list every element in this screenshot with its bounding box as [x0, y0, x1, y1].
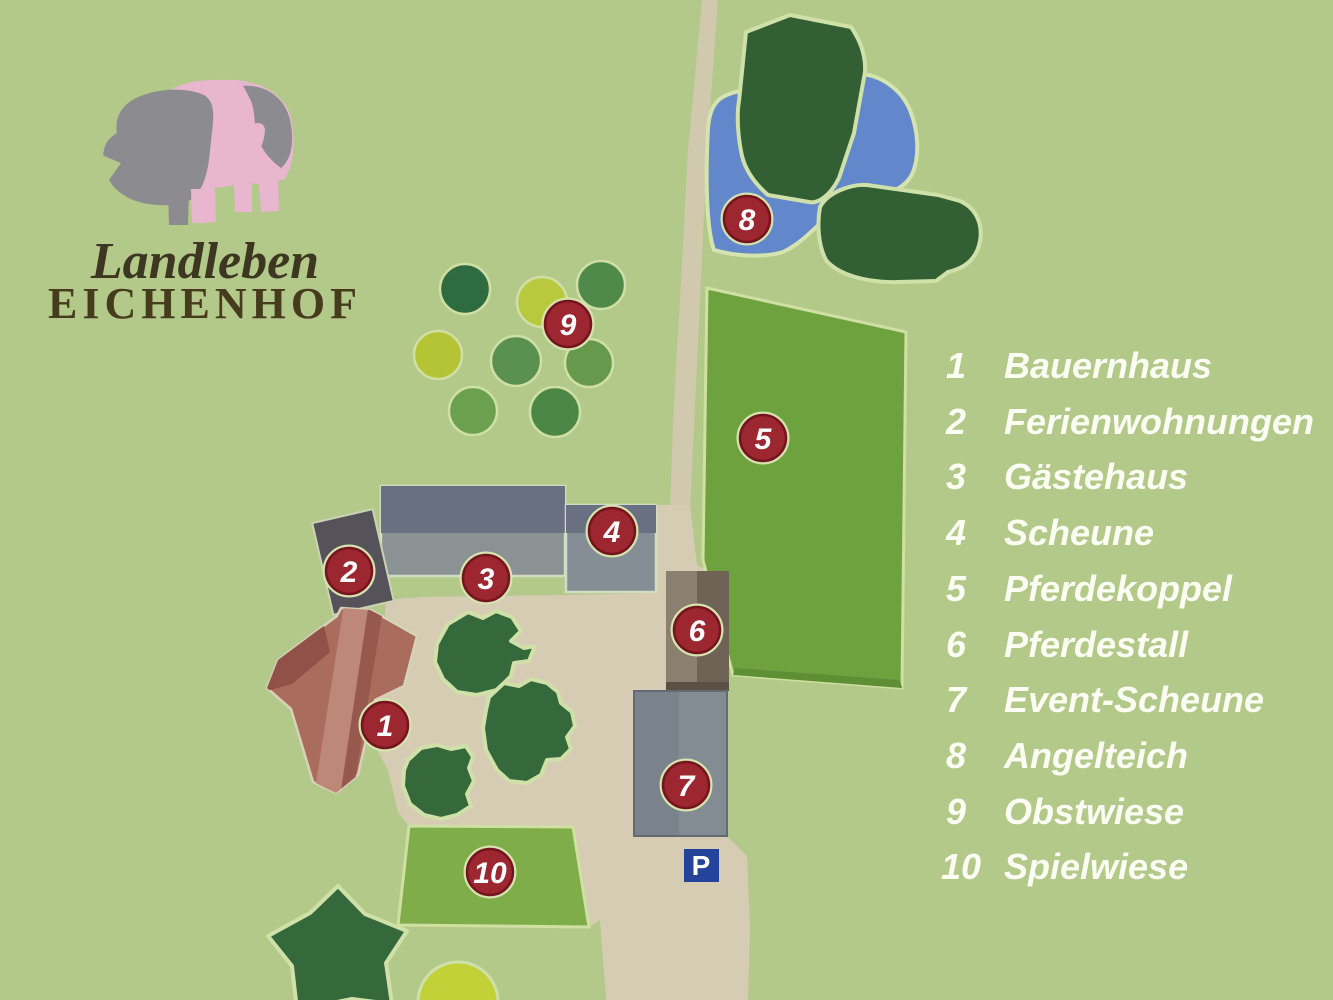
- svg-text:7: 7: [946, 679, 968, 720]
- svg-text:Spielwiese: Spielwiese: [1004, 846, 1188, 887]
- svg-text:6: 6: [689, 615, 706, 648]
- svg-text:P: P: [692, 850, 711, 881]
- svg-text:10: 10: [473, 857, 507, 890]
- svg-text:8: 8: [946, 735, 966, 776]
- svg-text:Gästehaus: Gästehaus: [1004, 456, 1188, 497]
- svg-text:2: 2: [340, 556, 358, 589]
- svg-text:3: 3: [478, 563, 495, 596]
- svg-text:2: 2: [945, 401, 966, 442]
- svg-text:10: 10: [941, 846, 981, 887]
- svg-text:5: 5: [946, 568, 967, 609]
- svg-text:3: 3: [946, 456, 966, 497]
- svg-text:Scheune: Scheune: [1004, 512, 1154, 553]
- svg-text:9: 9: [560, 309, 577, 342]
- svg-text:Ferienwohnungen: Ferienwohnungen: [1004, 401, 1314, 442]
- svg-text:Obstwiese: Obstwiese: [1004, 791, 1184, 832]
- svg-text:Event-Scheune: Event-Scheune: [1004, 679, 1264, 720]
- svg-text:Angelteich: Angelteich: [1003, 735, 1188, 776]
- svg-text:4: 4: [603, 516, 621, 549]
- svg-text:6: 6: [946, 624, 967, 665]
- svg-text:Bauernhaus: Bauernhaus: [1004, 345, 1212, 386]
- svg-text:7: 7: [678, 770, 696, 803]
- svg-text:Pferdekoppel: Pferdekoppel: [1004, 568, 1233, 609]
- svg-text:1: 1: [377, 710, 394, 743]
- svg-text:9: 9: [946, 791, 966, 832]
- svg-text:8: 8: [739, 204, 756, 237]
- svg-text:EICHENHOF: EICHENHOF: [48, 279, 362, 328]
- svg-text:Pferdestall: Pferdestall: [1004, 624, 1189, 665]
- svg-text:1: 1: [946, 345, 966, 386]
- svg-text:5: 5: [755, 423, 773, 456]
- svg-text:4: 4: [945, 512, 966, 553]
